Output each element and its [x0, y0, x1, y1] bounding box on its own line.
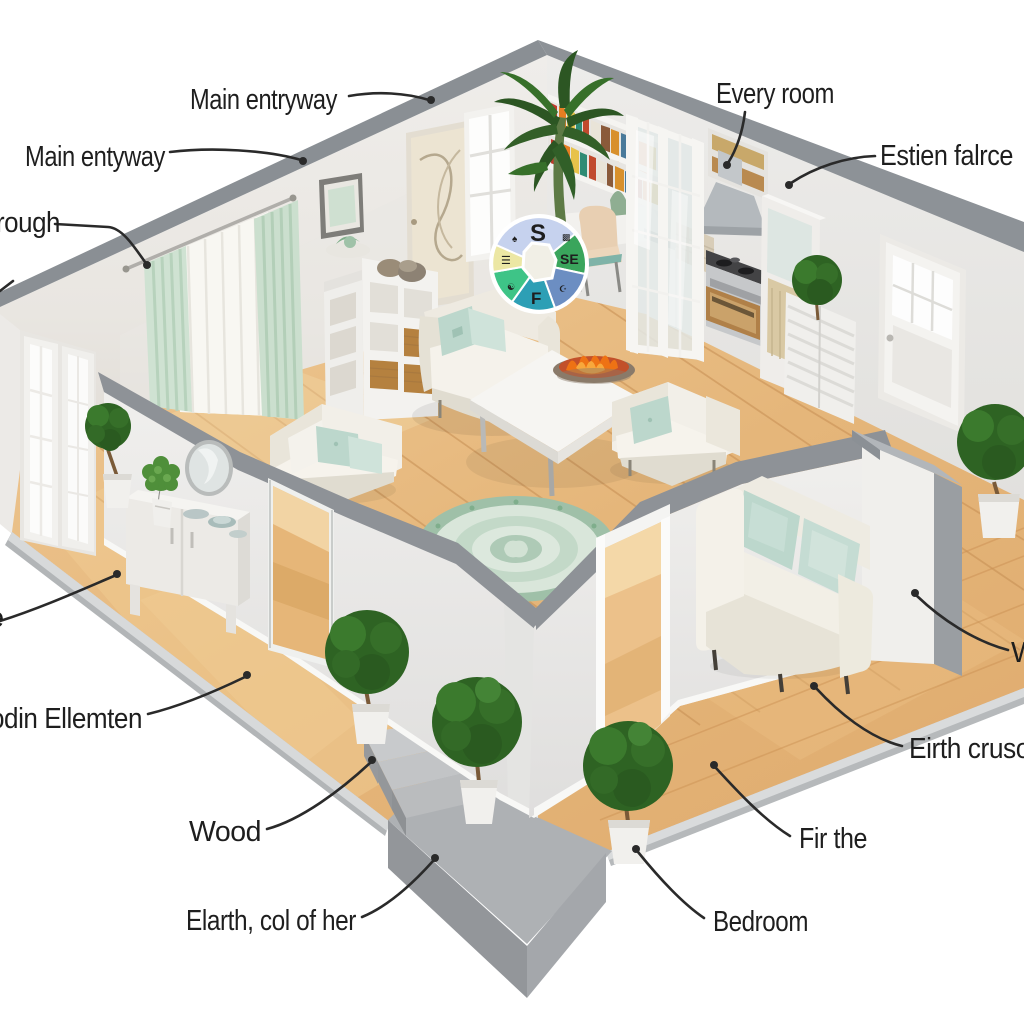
svg-text:Main entryway: Main entryway [190, 84, 338, 116]
svg-text:rough: rough [0, 207, 60, 239]
svg-text:W: W [1011, 637, 1024, 669]
svg-text:Estien falrce: Estien falrce [880, 140, 1013, 172]
svg-text:odin Ellemten: odin Ellemten [0, 703, 142, 735]
svg-text:☰: ☰ [501, 255, 511, 267]
svg-text:Elarth, col of her: Elarth, col of her [186, 905, 357, 937]
svg-text:SE: SE [560, 251, 579, 267]
svg-text:☪: ☪ [559, 284, 567, 294]
svg-text:e: e [0, 602, 4, 634]
svg-text:♠: ♠ [512, 234, 518, 245]
svg-text:Eirth cruso: Eirth cruso [909, 733, 1024, 765]
svg-text:F: F [531, 289, 541, 308]
svg-text:S: S [530, 220, 546, 247]
svg-text:Fir the: Fir the [799, 823, 867, 855]
svg-text:☯: ☯ [507, 282, 515, 292]
svg-text:Main entyway: Main entyway [25, 141, 166, 173]
svg-text:Bedroom: Bedroom [713, 906, 808, 938]
svg-text:Wood: Wood [189, 816, 261, 848]
svg-text:▩: ▩ [562, 232, 571, 242]
svg-text:Every room: Every room [716, 78, 834, 110]
